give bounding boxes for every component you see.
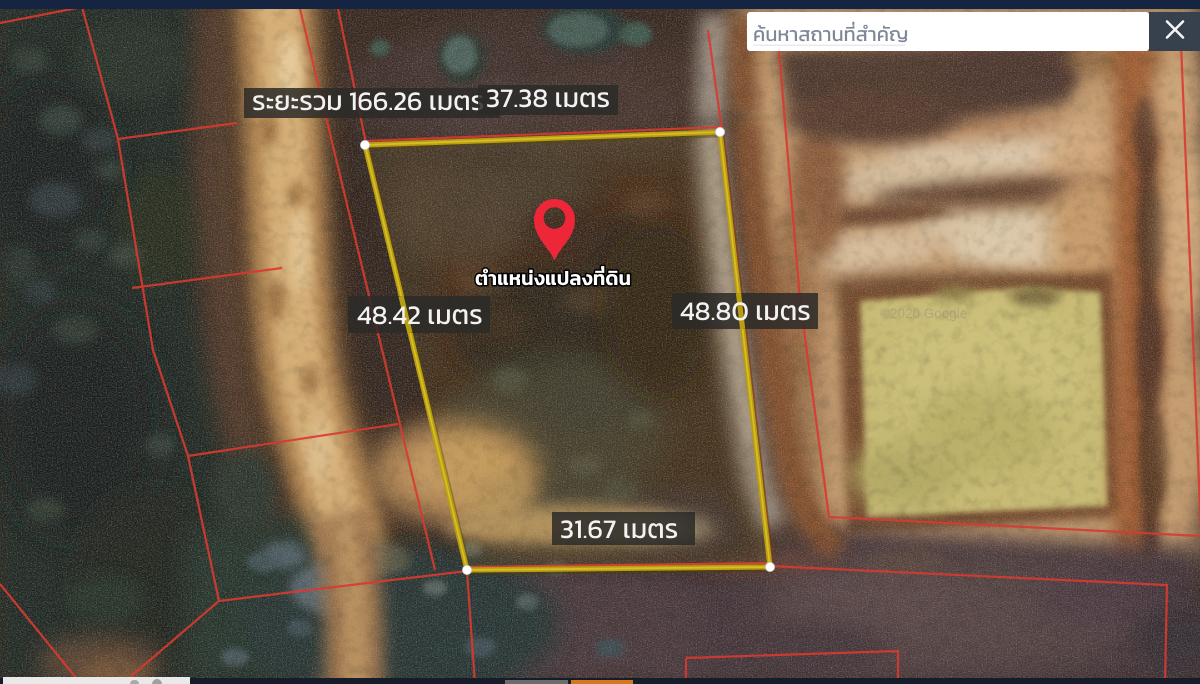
svg-text:©2020 Google: ©2020 Google (880, 306, 967, 321)
